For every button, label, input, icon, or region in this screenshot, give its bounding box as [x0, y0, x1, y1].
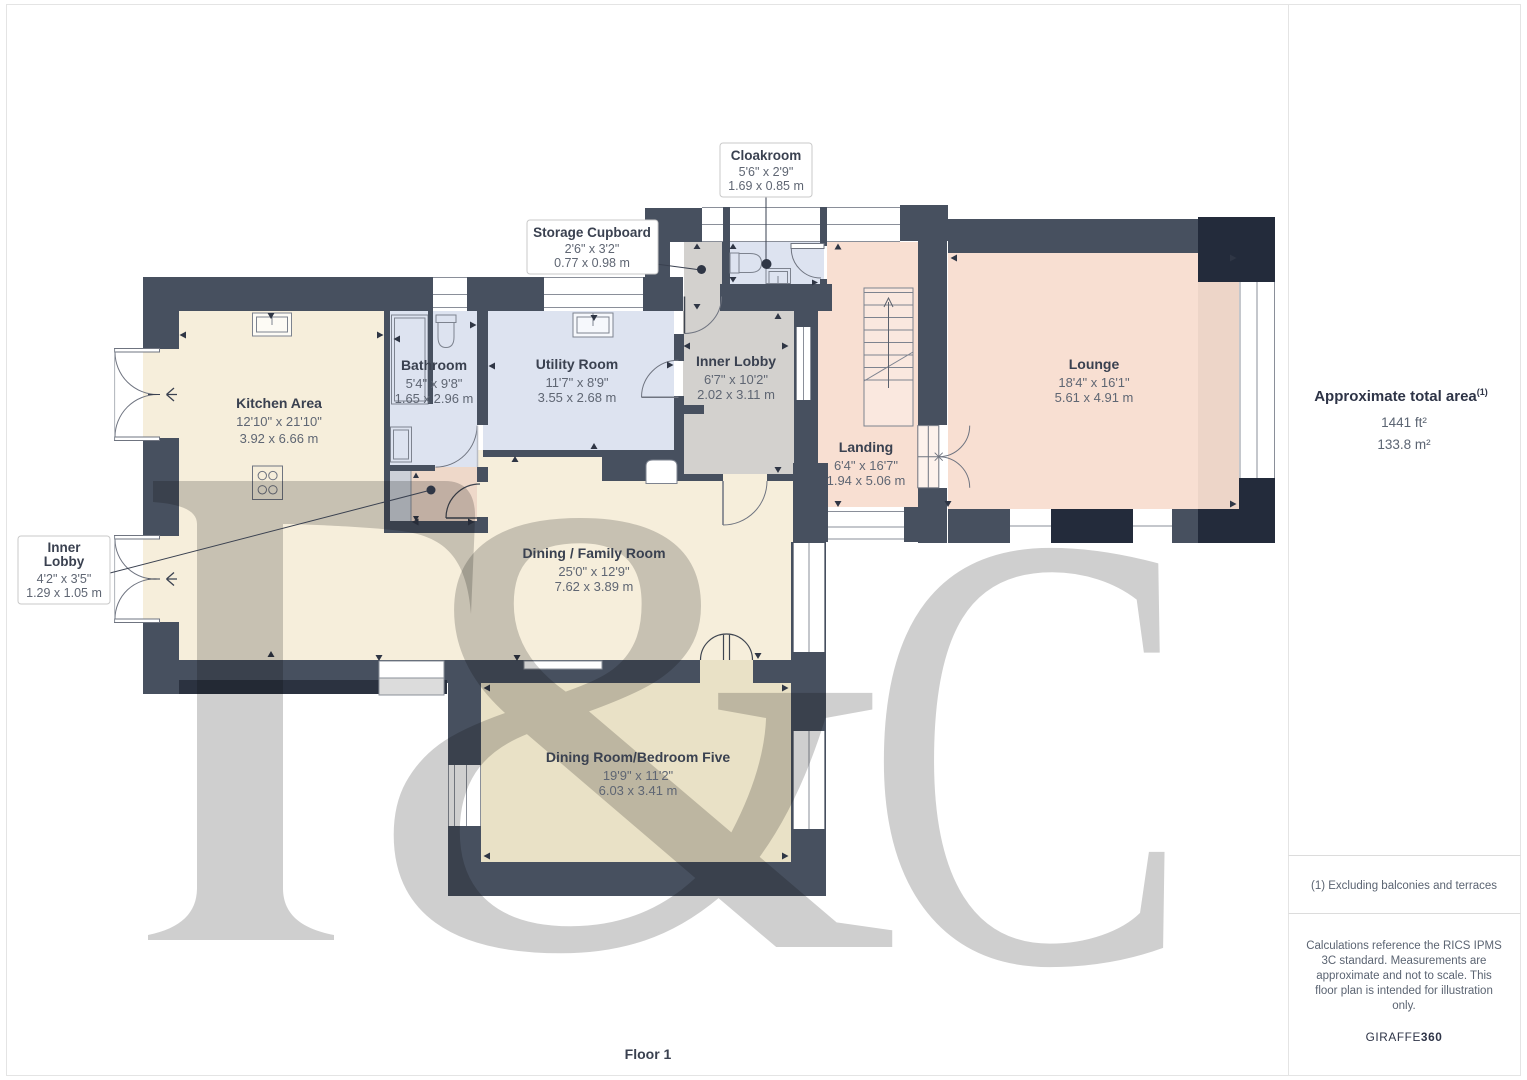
- svg-text:&: &: [367, 372, 904, 1080]
- svg-text:3.92 x 6.66 m: 3.92 x 6.66 m: [240, 431, 319, 446]
- svg-text:6'4" x 16'7": 6'4" x 16'7": [834, 458, 898, 473]
- svg-text:18'4" x 16'1": 18'4" x 16'1": [1058, 375, 1130, 390]
- svg-text:Dining / Family Room: Dining / Family Room: [522, 545, 665, 561]
- svg-text:1.65 x 2.96 m: 1.65 x 2.96 m: [395, 391, 474, 406]
- svg-text:Landing: Landing: [839, 439, 893, 455]
- svg-text:1.69 x 0.85 m: 1.69 x 0.85 m: [728, 179, 804, 193]
- svg-text:Dining Room/Bedroom Five: Dining Room/Bedroom Five: [546, 749, 731, 765]
- svg-text:Calculations reference the RIC: Calculations reference the RICS IPMS: [1306, 940, 1502, 952]
- svg-text:Bathroom: Bathroom: [401, 357, 467, 373]
- svg-text:1.29 x 1.05 m: 1.29 x 1.05 m: [26, 586, 102, 600]
- svg-text:approximate and not to scale.: approximate and not to scale. This: [1316, 970, 1492, 982]
- svg-text:4'2" x 3'5": 4'2" x 3'5": [37, 572, 92, 586]
- svg-text:25'0" x 12'9": 25'0" x 12'9": [558, 564, 630, 579]
- svg-text:Utility Room: Utility Room: [536, 356, 618, 372]
- svg-text:Floor 1: Floor 1: [625, 1046, 672, 1062]
- svg-text:2.02 x 3.11 m: 2.02 x 3.11 m: [697, 387, 775, 402]
- svg-text:6.03 x 3.41 m: 6.03 x 3.41 m: [599, 783, 678, 798]
- svg-text:3.55 x 2.68 m: 3.55 x 2.68 m: [538, 390, 617, 405]
- svg-text:5.61 x 4.91 m: 5.61 x 4.91 m: [1055, 390, 1134, 405]
- svg-text:only.: only.: [1392, 1000, 1415, 1012]
- svg-text:Lounge: Lounge: [1069, 356, 1120, 372]
- svg-text:133.8 m²: 133.8 m²: [1377, 437, 1431, 452]
- svg-text:7.62 x 3.89 m: 7.62 x 3.89 m: [555, 579, 634, 594]
- svg-text:Inner: Inner: [47, 540, 81, 555]
- svg-text:Inner Lobby: Inner Lobby: [696, 353, 776, 369]
- svg-text:Approximate total area(1): Approximate total area(1): [1314, 387, 1488, 405]
- svg-text:Lobby: Lobby: [44, 554, 85, 569]
- svg-text:2'6" x 3'2": 2'6" x 3'2": [565, 242, 620, 256]
- svg-text:6'7" x 10'2": 6'7" x 10'2": [704, 372, 768, 387]
- svg-text:0.77 x 0.98 m: 0.77 x 0.98 m: [554, 256, 630, 270]
- svg-text:12'10" x 21'10": 12'10" x 21'10": [236, 414, 322, 429]
- svg-text:(1) Excluding balconies and te: (1) Excluding balconies and terraces: [1311, 880, 1497, 892]
- svg-text:Kitchen Area: Kitchen Area: [236, 395, 322, 411]
- svg-text:3C standard. Measurements are: 3C standard. Measurements are: [1322, 955, 1487, 967]
- svg-text:1.94 x 5.06 m: 1.94 x 5.06 m: [827, 473, 906, 488]
- svg-text:1441 ft²: 1441 ft²: [1381, 415, 1427, 430]
- svg-text:C: C: [864, 404, 1192, 1080]
- svg-text:19'9" x 11'2": 19'9" x 11'2": [603, 768, 674, 783]
- svg-text:5'6" x 2'9": 5'6" x 2'9": [739, 165, 794, 179]
- svg-text:GIRAFFE360: GIRAFFE360: [1366, 1030, 1443, 1044]
- svg-text:11'7" x 8'9": 11'7" x 8'9": [545, 375, 608, 390]
- svg-text:floor plan is intended for ill: floor plan is intended for illustration: [1315, 985, 1493, 997]
- svg-text:Cloakroom: Cloakroom: [731, 148, 802, 163]
- svg-text:5'4" x 9'8": 5'4" x 9'8": [406, 376, 463, 391]
- svg-text:Storage Cupboard: Storage Cupboard: [533, 225, 651, 240]
